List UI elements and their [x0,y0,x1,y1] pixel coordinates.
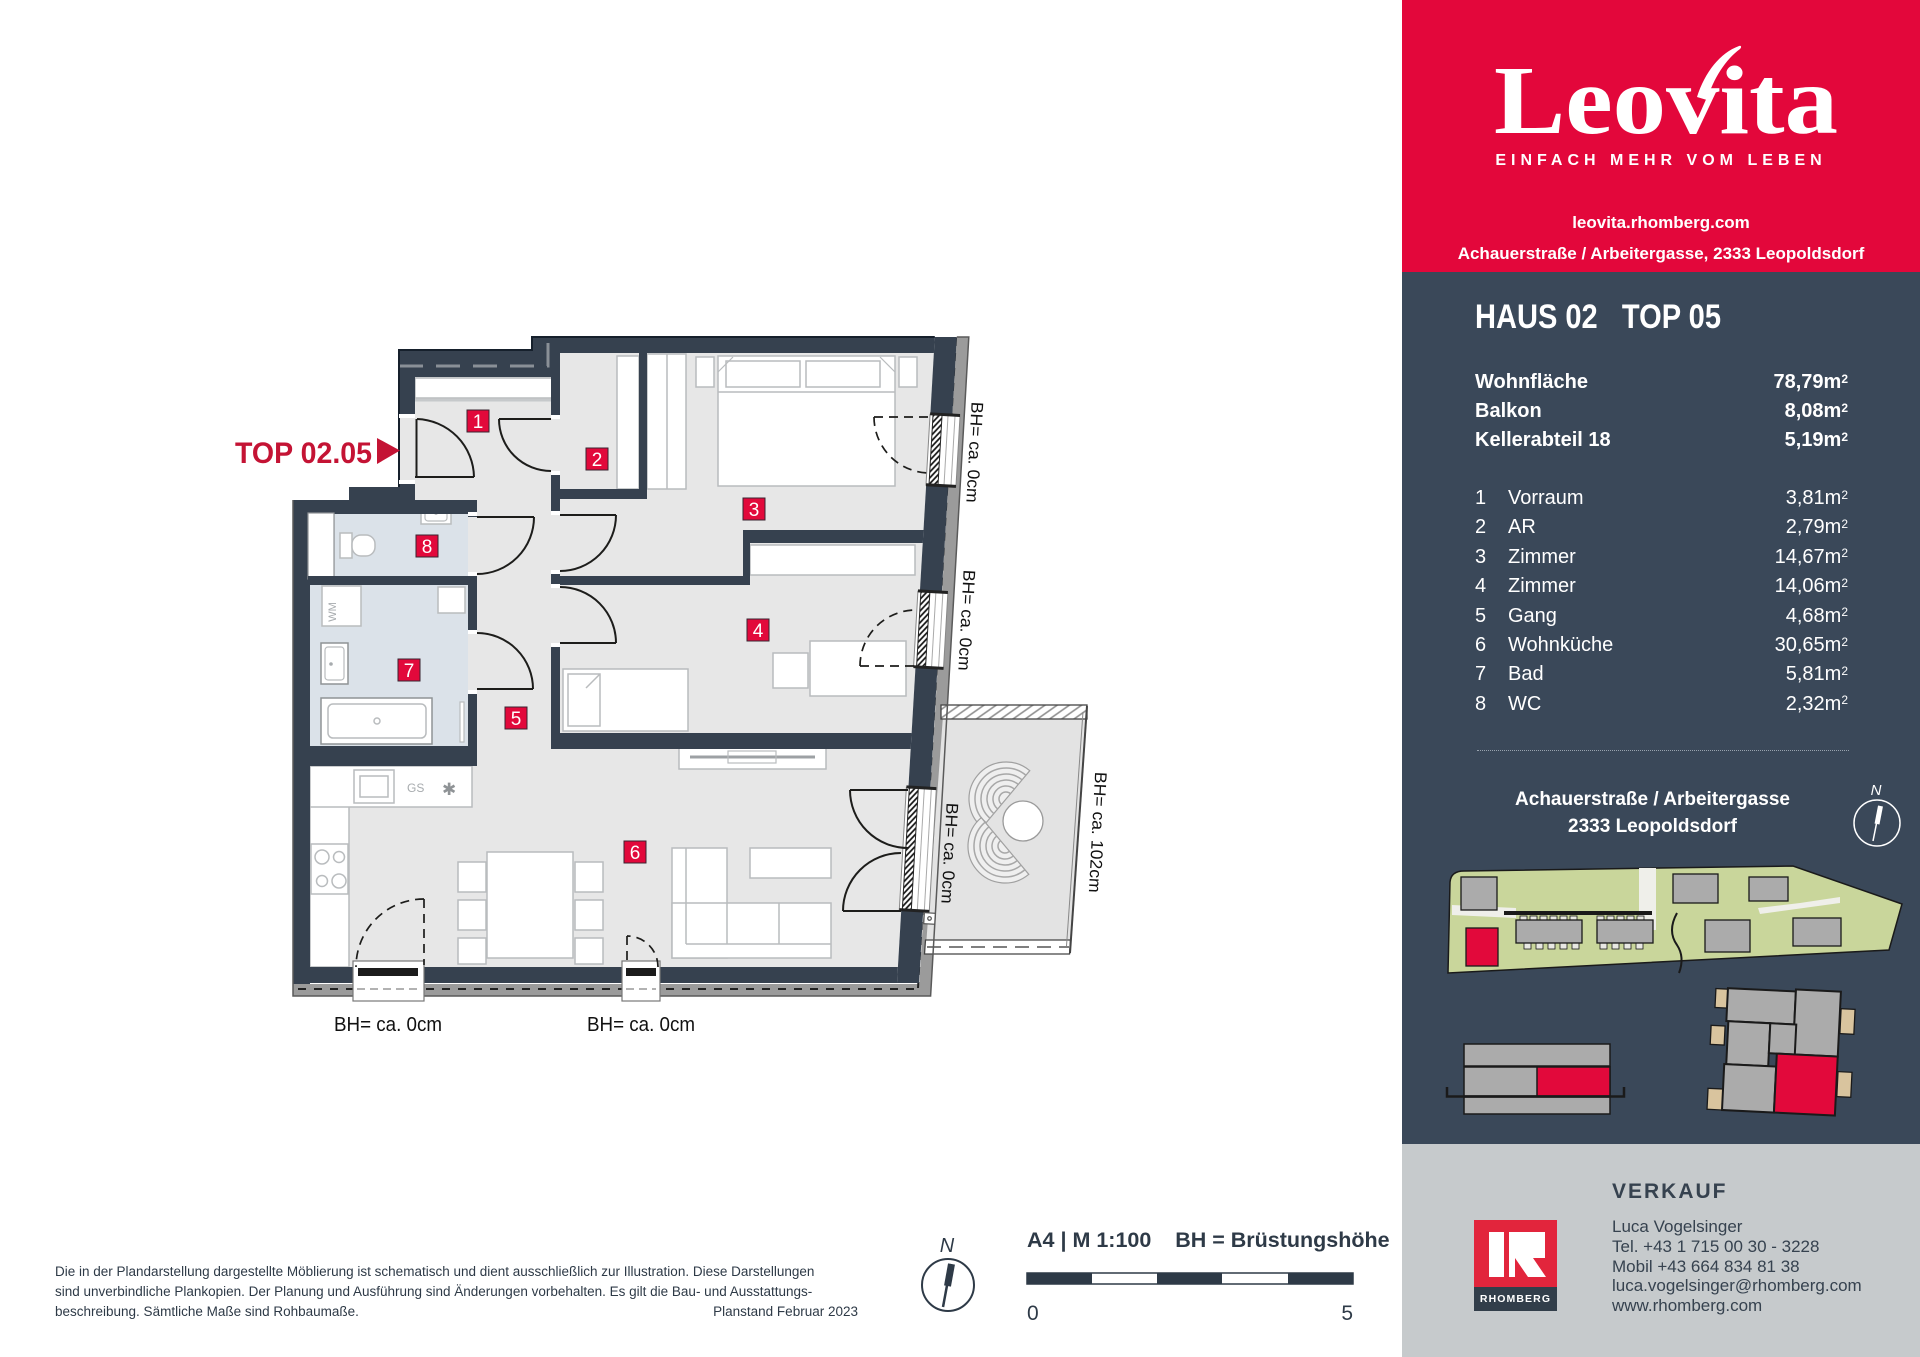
svg-text:BH= ca. 0cm: BH= ca. 0cm [962,401,986,503]
svg-text:BH= ca. 0cm: BH= ca. 0cm [334,1014,442,1036]
svg-text:✱: ✱ [442,780,456,799]
svg-text:BH= ca. 0cm: BH= ca. 0cm [954,569,978,671]
svg-text:5: 5 [511,709,522,730]
svg-text:4: 4 [753,621,764,642]
svg-text:BH= ca. 102cm: BH= ca. 102cm [1085,771,1110,893]
svg-text:0: 0 [1027,1302,1039,1325]
svg-text:3: 3 [749,500,760,521]
svg-text:BH= ca. 0cm: BH= ca. 0cm [587,1014,695,1036]
svg-text:GS: GS [407,781,424,795]
svg-text:HAUS 02 TOP 05: HAUS 02 TOP 05 [1475,298,1721,336]
svg-text:N: N [1871,782,1882,799]
svg-text:6: 6 [630,843,641,864]
svg-text:5: 5 [1341,1302,1353,1325]
svg-text:N: N [940,1235,955,1257]
svg-text:TOP 02.05: TOP 02.05 [235,437,372,470]
svg-text:WM: WM [327,602,339,622]
svg-text:2: 2 [592,450,603,471]
svg-text:7: 7 [404,661,415,682]
svg-text:8: 8 [422,537,433,558]
svg-text:1: 1 [473,412,484,433]
svg-text:A4 | M 1:100 BH = Brüstungs: A4 | M 1:100 BH = Brüstungshöhe [1027,1228,1390,1252]
